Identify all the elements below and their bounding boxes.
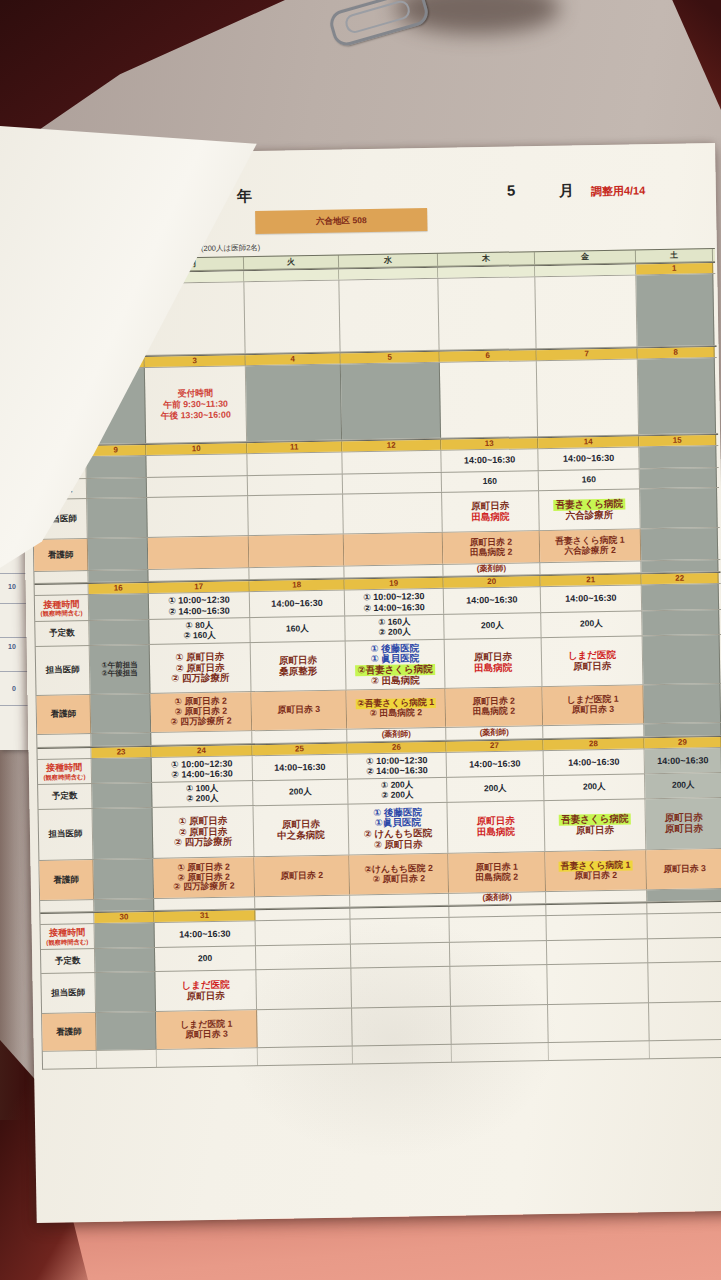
pharm-cell xyxy=(151,731,252,745)
pharm-cell: (薬剤師) xyxy=(449,892,546,905)
pharm-cell xyxy=(543,724,644,738)
time-cell xyxy=(647,913,721,938)
date-band-label xyxy=(40,913,94,924)
row-label-time: 接種時間(観察時間含む) xyxy=(35,595,89,621)
date-cell xyxy=(438,266,535,278)
day-cell xyxy=(339,279,439,352)
date-cell: 17 xyxy=(149,581,250,593)
date-cell: 11 xyxy=(247,442,342,454)
weekday-header: 金 xyxy=(535,250,636,264)
time-cell: 14:00~16:30 xyxy=(447,751,544,777)
date-cell: 7 xyxy=(537,348,638,360)
count-cell: 160人 xyxy=(250,617,345,643)
row-label-pharm xyxy=(34,571,88,583)
date-cell: 27 xyxy=(446,740,543,752)
count-cell: 200人 xyxy=(645,773,721,798)
row-label-pharm xyxy=(40,900,94,912)
date-cell: 31 xyxy=(154,910,255,922)
row-label-nurse: 看護師 xyxy=(34,539,89,571)
paperclip-icon xyxy=(327,0,431,49)
pharm-cell xyxy=(249,567,344,580)
time-cell: 14:00~16:30 xyxy=(544,749,645,775)
date-cell: 15 xyxy=(639,435,716,446)
empty-cell xyxy=(452,1043,549,1062)
pharm-cell xyxy=(546,890,647,903)
date-cell xyxy=(647,902,721,913)
weekday-header: 土 xyxy=(636,249,713,262)
pharm-cell: (薬剤師) xyxy=(443,563,540,576)
time-cell xyxy=(342,451,441,474)
month-number: 5 xyxy=(507,181,516,198)
nurse-cell xyxy=(352,1007,452,1046)
count-cell: ① 100人② 200人 xyxy=(152,781,253,807)
day-cell xyxy=(535,275,637,348)
desk-dark-corner-top-right xyxy=(646,0,721,110)
count-cell: 200人 xyxy=(541,611,642,637)
time-cell xyxy=(449,916,546,942)
time-cell xyxy=(92,758,152,783)
count-cell: 200人 xyxy=(544,774,645,800)
pharm-cell xyxy=(647,889,721,901)
nurse-cell: 原町日赤 3 xyxy=(252,691,348,731)
day-cell xyxy=(537,359,639,436)
doctor-cell: ① 原町日赤② 原町日赤② 四万診療所 xyxy=(150,643,252,693)
nurse-cell: ②けんもち医院 2② 原町日赤 2 xyxy=(349,854,449,895)
pharm-cell xyxy=(644,723,721,736)
empty-cell xyxy=(353,1045,452,1064)
date-cell xyxy=(546,903,647,915)
date-cell xyxy=(244,270,339,282)
date-cell: 8 xyxy=(638,347,715,358)
date-cell: 20 xyxy=(444,576,541,588)
time-cell xyxy=(546,914,647,940)
count-cell: 200人 xyxy=(444,613,541,639)
nurse-cell: ① 原町日赤 2② 原町日赤 2② 四万診療所 2 xyxy=(151,692,253,732)
weekday-header: 水 xyxy=(339,254,438,268)
left-edge-shadow xyxy=(0,700,26,1120)
doctor-cell xyxy=(648,962,721,1002)
empty-cell xyxy=(97,1050,157,1068)
doctor-cell xyxy=(95,972,156,1012)
nurse-cell: 吾妻さくら病院 1六合診療所 2 xyxy=(540,529,642,562)
count-cell: 200 xyxy=(155,946,256,971)
count-cell xyxy=(87,478,147,498)
nurse-cell xyxy=(93,859,154,899)
date-band-label xyxy=(35,584,89,595)
pharm-cell xyxy=(255,895,350,908)
row-label-nurse: 看護師 xyxy=(42,1013,97,1051)
doctor-cell: 原町日赤桑原整形 xyxy=(251,642,347,692)
nurse-cell xyxy=(148,536,250,569)
under-sheet-number: 10 xyxy=(8,643,16,650)
nurse-cell: 原町日赤 1田島病院 2 xyxy=(448,852,546,893)
date-cell xyxy=(535,264,636,276)
doctor-cell: ① 原町日赤② 原町日赤② 四万診療所 xyxy=(153,806,255,858)
pharm-cell xyxy=(88,570,148,582)
count-cell: ① 160人② 200人 xyxy=(345,615,444,641)
doctor-cell: 原町日赤田島病院 xyxy=(445,638,543,688)
count-cell: 200人 xyxy=(447,776,544,802)
time-cell xyxy=(642,584,719,610)
date-cell: 23 xyxy=(91,747,151,758)
date-cell xyxy=(339,268,438,280)
date-cell: 29 xyxy=(644,737,721,748)
day-cell xyxy=(244,281,340,354)
time-cell: 14:00~16:30 xyxy=(538,447,639,470)
day-cell xyxy=(638,358,716,434)
count-cell xyxy=(95,948,155,972)
time-cell xyxy=(247,453,342,476)
empty-cell xyxy=(549,1041,650,1060)
row-label-time: 接種時間(観察時間含む) xyxy=(41,924,95,949)
doctor-cell xyxy=(93,808,154,859)
empty-cell xyxy=(43,1051,97,1069)
nurse-cell xyxy=(451,1005,549,1044)
date-cell: 4 xyxy=(246,354,341,366)
doctor-cell xyxy=(147,496,249,537)
month-label: 月 xyxy=(559,181,574,200)
row-label-doctor: 担当医師 xyxy=(41,973,96,1013)
date-cell: 13 xyxy=(441,438,538,450)
pharm-cell: (薬剤師) xyxy=(446,726,543,740)
date-band-label xyxy=(37,748,91,759)
nurse-cell xyxy=(249,535,345,568)
time-cell: ① 10:00~12:30② 14:00~16:30 xyxy=(348,753,447,779)
date-cell: 14 xyxy=(538,436,639,448)
doctor-cell xyxy=(640,488,718,528)
time-cell xyxy=(350,918,449,944)
time-cell xyxy=(639,446,716,468)
count-cell: 160 xyxy=(539,469,640,490)
nurse-cell xyxy=(344,533,444,566)
under-sheet-number: 10 xyxy=(8,583,16,590)
doctor-cell: ① 後藤医院① 眞貝医院②吾妻さくら病院② 田島病院 xyxy=(346,640,446,690)
count-cell xyxy=(450,941,547,966)
time-cell: ① 10:00~12:30② 14:00~16:30 xyxy=(345,589,444,616)
doctor-cell xyxy=(450,965,548,1006)
district-banner: 六合地区 508 xyxy=(255,208,427,234)
count-cell xyxy=(89,620,149,645)
doctor-cell xyxy=(343,493,443,534)
time-cell: 14:00~16:30 xyxy=(155,921,256,947)
doctor-cell: しまだ医院原町日赤 xyxy=(155,970,257,1011)
row-label-count: 予定数 xyxy=(38,784,92,809)
weekday-header: 火 xyxy=(244,256,339,270)
nurse-cell: しまだ医院 1原町日赤 3 xyxy=(156,1010,258,1049)
row-label-nurse: 看護師 xyxy=(37,695,92,734)
pharm-cell xyxy=(540,561,641,574)
doctor-cell: 原町日赤田島病院 xyxy=(442,491,540,532)
doctor-cell xyxy=(351,967,451,1008)
nurse-cell xyxy=(643,684,721,723)
photo-scene: 10 10 0 年 5 月 調整用4/14 六合地区 508 を基本とする。(2… xyxy=(0,0,721,1280)
date-cell xyxy=(350,907,449,919)
date-cell: 22 xyxy=(642,573,719,584)
count-cell xyxy=(92,783,152,808)
empty-cell xyxy=(157,1048,258,1067)
date-cell: 18 xyxy=(250,580,345,592)
count-cell xyxy=(640,468,717,488)
time-cell: ① 10:00~12:30② 14:00~16:30 xyxy=(149,592,250,619)
pharm-cell xyxy=(91,733,151,746)
date-cell: 3 xyxy=(145,355,246,367)
nurse-cell: 原町日赤 2田島病院 2 xyxy=(443,531,541,564)
time-cell: ① 10:00~12:30② 14:00~16:30 xyxy=(152,756,253,782)
date-cell: 28 xyxy=(543,738,644,750)
time-cell: 14:00~16:30 xyxy=(253,755,348,781)
row-label-time: 接種時間(観察時間含む) xyxy=(38,759,92,784)
time-cell: 14:00~16:30 xyxy=(441,449,538,472)
doctor-cell: ① 後藤医院①眞貝医院② けんもち医院② 原町日赤 xyxy=(348,803,448,855)
doctor-cell: 原町日赤田島病院 xyxy=(447,801,545,853)
nurse-cell xyxy=(257,1008,353,1047)
doctor-cell: 原町日赤中之条病院 xyxy=(254,804,350,856)
date-cell xyxy=(449,905,546,917)
date-cell: 25 xyxy=(252,744,347,756)
nurse-cell xyxy=(96,1012,157,1050)
date-cell: 30 xyxy=(94,912,154,923)
count-cell xyxy=(547,939,648,964)
time-cell: 14:00~16:30 xyxy=(250,591,345,618)
row-label-count: 予定数 xyxy=(41,949,95,973)
nurse-cell xyxy=(91,694,152,733)
nurse-cell xyxy=(88,538,149,570)
date-cell: 21 xyxy=(541,574,642,586)
pharm-cell xyxy=(344,565,443,578)
nurse-cell: 吾妻さくら病院 1原町日赤 2 xyxy=(545,850,647,891)
day-cell xyxy=(246,365,342,442)
count-cell xyxy=(147,476,248,497)
under-sheet-number: 0 xyxy=(12,685,16,692)
time-cell: 14:00~16:30 xyxy=(444,587,541,614)
day-cell xyxy=(438,277,536,350)
doctor-cell xyxy=(87,498,148,538)
date-cell: 12 xyxy=(342,440,441,452)
year-label: 年 xyxy=(237,187,252,206)
day-cell xyxy=(341,363,441,440)
time-cell xyxy=(95,923,155,948)
weekday-header: 木 xyxy=(438,252,535,266)
pharm-cell xyxy=(148,568,249,581)
day-cell xyxy=(636,274,714,346)
pharm-cell xyxy=(252,730,347,744)
doctor-cell xyxy=(547,963,649,1004)
nurse-cell: しまだ医院 1原町日赤 3 xyxy=(542,685,644,725)
pharm-cell xyxy=(641,560,718,572)
doctor-cell: しまだ医院原町日赤 xyxy=(542,636,644,686)
pharm-cell xyxy=(94,899,154,911)
time-cell xyxy=(89,594,149,620)
nurse-cell: 原町日赤 2 xyxy=(254,855,350,896)
count-cell xyxy=(648,938,721,962)
count-cell xyxy=(248,475,343,496)
count-cell: 160 xyxy=(442,471,539,492)
date-cell xyxy=(255,908,350,920)
count-cell: ① 200人② 200人 xyxy=(348,778,447,804)
row-label-doctor: 担当医師 xyxy=(36,646,91,695)
date-cell: 6 xyxy=(440,350,537,362)
pharm-cell: (薬剤師) xyxy=(347,728,446,742)
nurse-cell xyxy=(548,1003,650,1042)
row-label-nurse: 看護師 xyxy=(39,860,94,900)
day-cell: 受付時間午前 9:30~11:30午後 13:30~16:00 xyxy=(145,366,247,443)
doctor-cell: 原町日赤原町日赤 xyxy=(645,798,721,849)
count-cell xyxy=(256,944,351,969)
count-cell xyxy=(642,610,719,635)
nurse-cell xyxy=(649,1002,721,1040)
nurse-cell xyxy=(641,528,719,560)
date-cell: 5 xyxy=(341,352,440,364)
count-cell xyxy=(351,943,450,968)
date-cell: 1 xyxy=(636,263,713,274)
doctor-cell xyxy=(248,495,344,536)
date-cell: 19 xyxy=(345,578,444,590)
date-cell: 10 xyxy=(146,443,247,455)
nurse-cell: 原町日赤 3 xyxy=(646,849,721,889)
nurse-cell: 原町日赤 2田島病院 2 xyxy=(445,687,543,727)
pharm-cell xyxy=(154,897,255,910)
row-label-pharm xyxy=(37,734,91,747)
row-label-doctor: 担当医師 xyxy=(39,809,94,860)
time-cell: 14:00~16:30 xyxy=(645,748,721,773)
empty-cell xyxy=(258,1046,353,1065)
doctor-cell: 吾妻さくら病院原町日赤 xyxy=(544,799,646,851)
adjust-note: 調整用4/14 xyxy=(591,183,646,199)
date-cell: 24 xyxy=(151,745,252,757)
row-label-count: 予定数 xyxy=(35,621,89,646)
date-cell: 26 xyxy=(347,742,446,754)
date-cell: 16 xyxy=(89,583,149,594)
time-cell xyxy=(256,919,351,945)
empty-cell xyxy=(650,1040,721,1058)
count-cell: 200人 xyxy=(253,780,348,806)
doctor-cell: ①午前担当②午後担当 xyxy=(90,645,151,694)
time-cell xyxy=(86,456,146,478)
count-cell xyxy=(343,473,442,494)
time-cell: 14:00~16:30 xyxy=(541,585,642,612)
doctor-cell xyxy=(643,635,721,684)
nurse-cell: ②吾妻さくら病院 1② 田島病院 2 xyxy=(346,689,446,729)
doctor-cell: 吾妻さくら病院六合診療所 xyxy=(539,489,641,530)
day-cell xyxy=(440,361,538,438)
doctor-cell xyxy=(256,968,352,1009)
time-cell xyxy=(146,454,247,477)
count-cell: ① 80人② 160人 xyxy=(149,618,250,644)
pharm-cell xyxy=(350,894,449,907)
nurse-cell: ① 原町日赤 2② 原町日赤 2② 四万診療所 2 xyxy=(153,857,255,898)
